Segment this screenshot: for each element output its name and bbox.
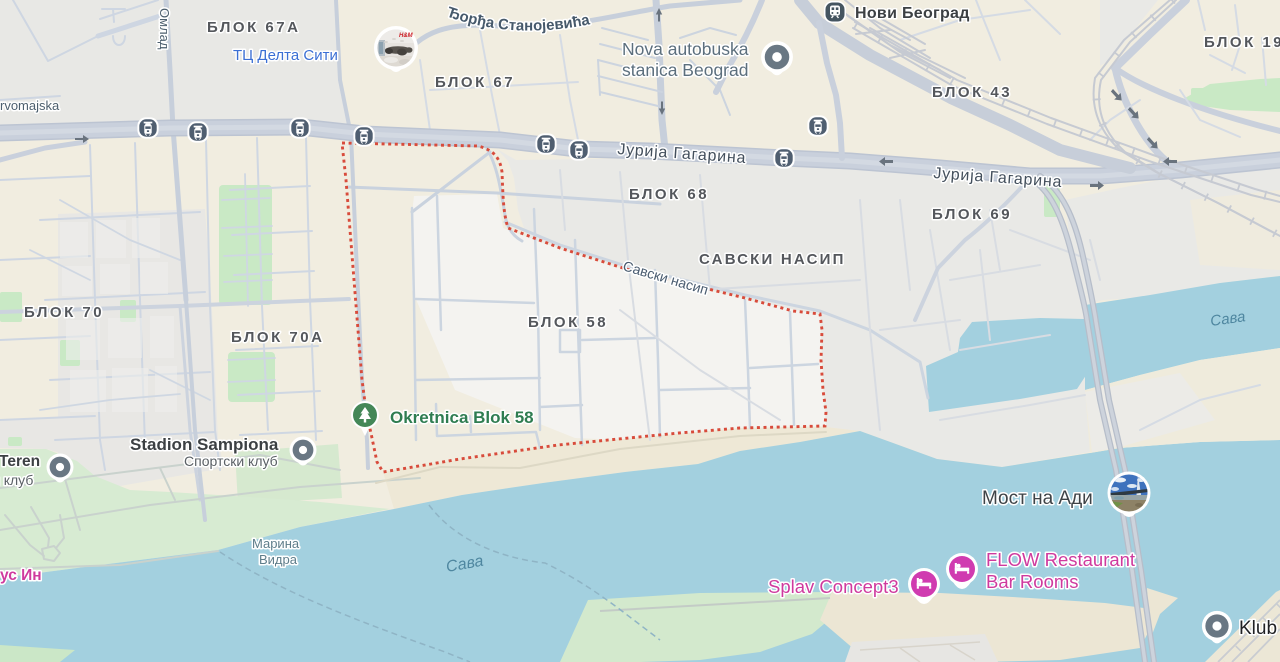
svg-text:Омлад: Омлад [157,8,172,50]
svg-text:ус Ин: ус Ин [0,567,42,584]
svg-text:БЛОК 43: БЛОК 43 [932,84,1012,101]
svg-text:Bar Rooms: Bar Rooms [986,571,1079,592]
svg-text:БЛОК 70А: БЛОК 70А [231,329,324,346]
svg-text:rvomajska: rvomajska [0,98,60,113]
svg-text:Марина: Марина [252,536,300,551]
svg-text:БЛОК 68: БЛОК 68 [629,186,709,203]
svg-text:и клуб: и клуб [0,472,33,488]
svg-text:Teren: Teren [0,453,40,470]
svg-text:Нови Београд: Нови Београд [855,5,970,22]
svg-text:ТЦ Делта Сити: ТЦ Делта Сити [233,47,338,64]
svg-text:Klub: Klub [1239,618,1277,639]
svg-text:Спортски клуб: Спортски клуб [184,453,278,469]
svg-text:БЛОК 19: БЛОК 19 [1204,34,1280,51]
svg-text:САВСКИ НАСИП: САВСКИ НАСИП [699,251,846,268]
svg-text:БЛОК 67А: БЛОК 67А [207,19,300,36]
svg-text:БЛОК 70: БЛОК 70 [24,304,104,321]
svg-text:Nova autobuska: Nova autobuska [622,39,749,59]
svg-text:Stadion Sampiona: Stadion Sampiona [130,435,279,454]
svg-text:Okretnica Blok 58: Okretnica Blok 58 [390,408,534,427]
svg-text:stanica Beograd: stanica Beograd [622,60,748,80]
svg-text:Видра: Видра [259,552,298,567]
svg-text:H&M: H&M [399,33,414,39]
svg-text:Splav Concept3: Splav Concept3 [768,576,899,597]
svg-text:БЛОК 58: БЛОК 58 [528,314,608,331]
svg-text:Мост на Ади: Мост на Ади [982,488,1093,509]
svg-text:БЛОК 67: БЛОК 67 [435,74,515,91]
svg-text:БЛОК 69: БЛОК 69 [932,206,1012,223]
svg-text:FLOW Restaurant: FLOW Restaurant [986,549,1135,570]
